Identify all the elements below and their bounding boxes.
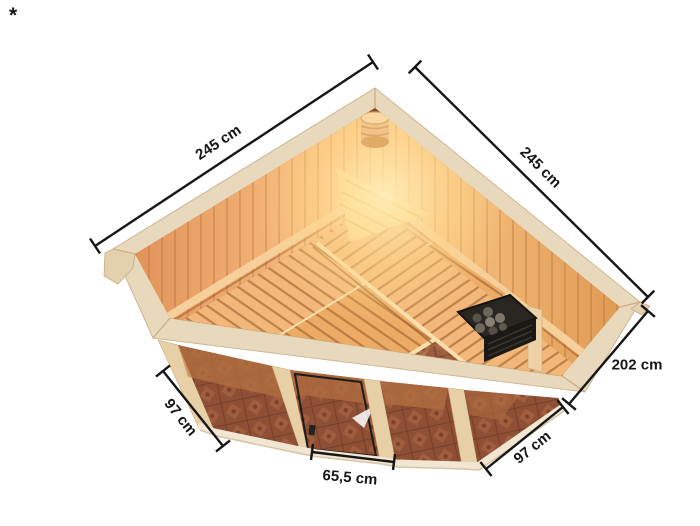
door-handle (308, 425, 315, 436)
footnote-asterisk: * (9, 4, 18, 27)
dimension-label: 202 cm (612, 356, 663, 373)
dimension-label: 245 cm (193, 121, 245, 163)
dimension-label: 245 cm (516, 144, 564, 192)
sauna-dimension-diagram: * (0, 0, 700, 526)
dimension-label: 65,5 cm (322, 467, 378, 489)
